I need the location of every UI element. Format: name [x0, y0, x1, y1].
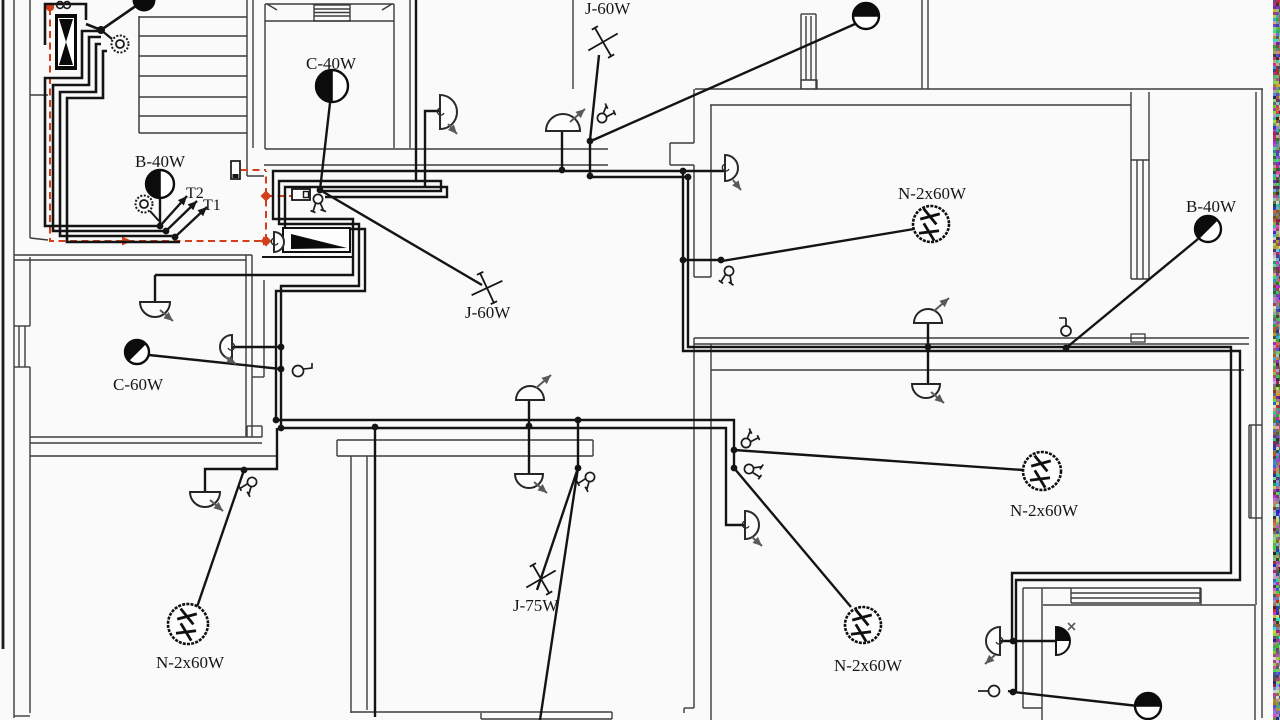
- svg-text:J-60W: J-60W: [585, 0, 631, 18]
- svg-text:N-2x60W: N-2x60W: [898, 184, 967, 203]
- svg-text:J-75W: J-75W: [513, 596, 559, 615]
- svg-text:J-60W: J-60W: [465, 303, 511, 322]
- svg-text:B-40W: B-40W: [135, 152, 186, 171]
- svg-text:N-2x60W: N-2x60W: [1010, 501, 1079, 520]
- svg-text:T2: T2: [186, 185, 204, 202]
- svg-text:C-40W: C-40W: [306, 54, 357, 73]
- svg-text:C-60W: C-60W: [113, 375, 164, 394]
- svg-text:N-2x60W: N-2x60W: [834, 656, 903, 675]
- svg-text:T1: T1: [203, 197, 221, 214]
- svg-text:B-40W: B-40W: [1186, 197, 1237, 216]
- svg-text:N-2x60W: N-2x60W: [156, 653, 225, 672]
